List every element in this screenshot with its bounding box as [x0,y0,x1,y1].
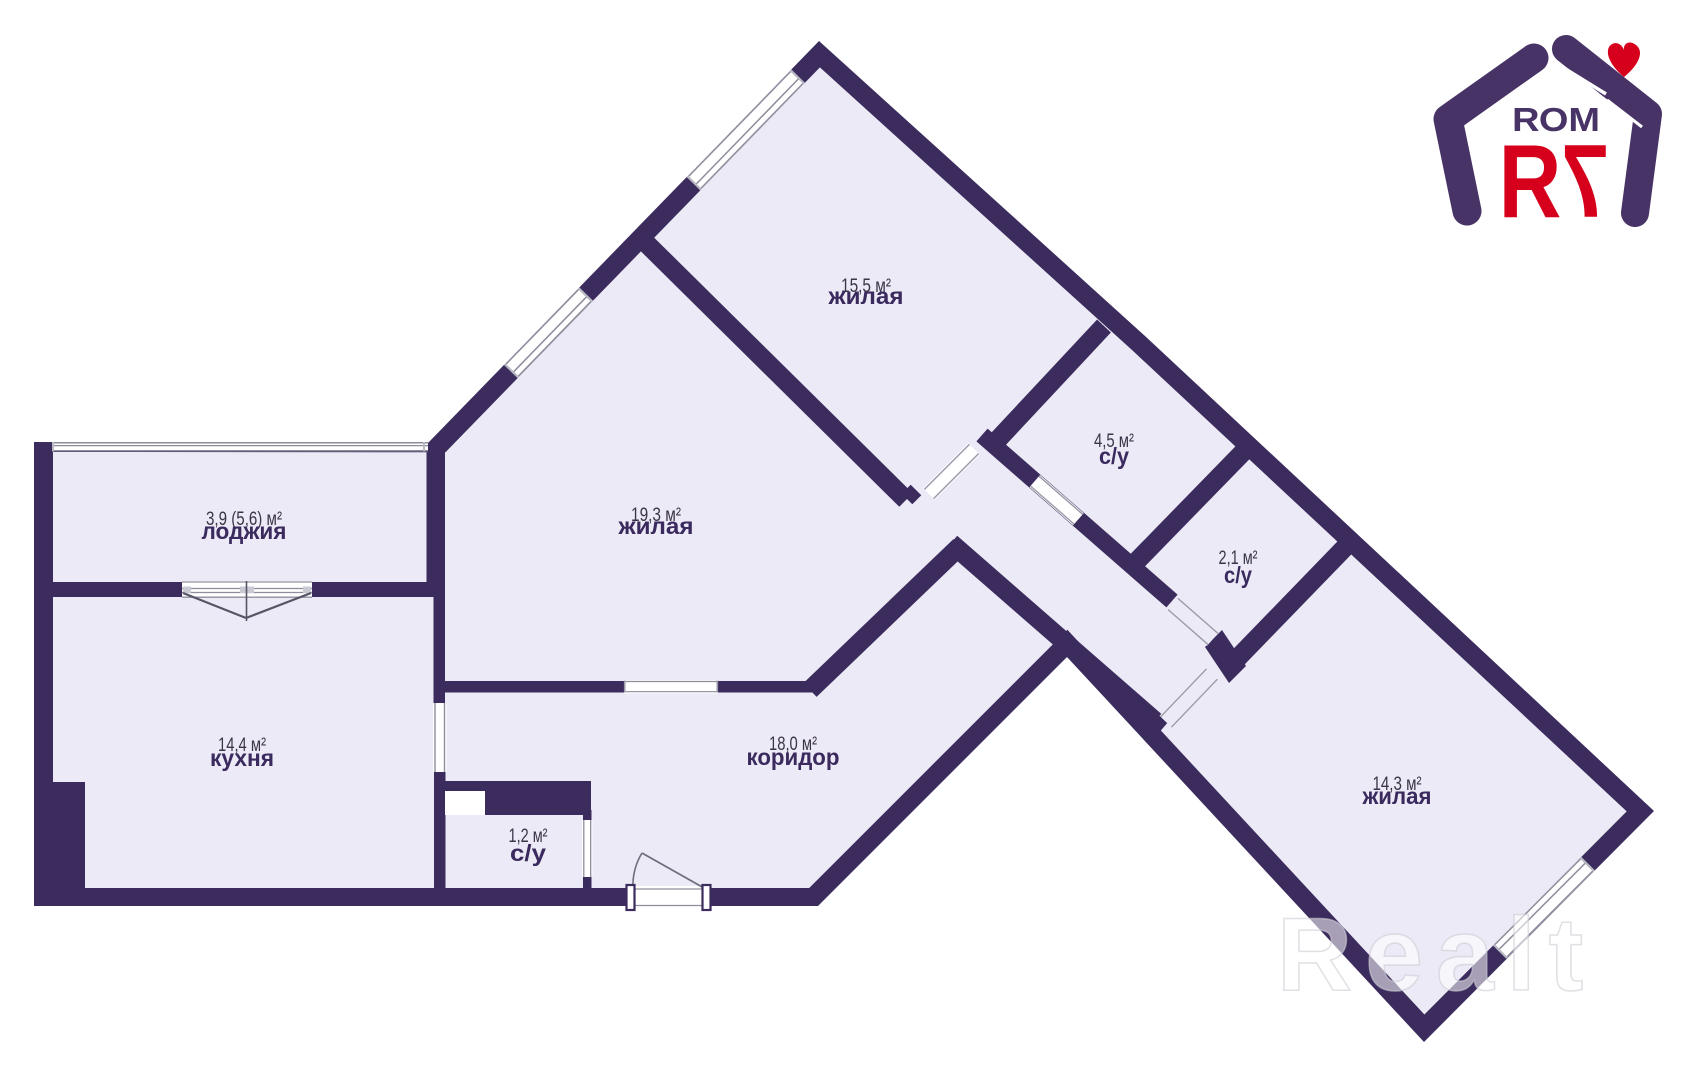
svg-text:с/у: с/у [1224,562,1252,588]
svg-text:коридор: коридор [747,744,840,770]
svg-text:кухня: кухня [210,745,274,771]
svg-text:с/у: с/у [1099,443,1129,469]
svg-text:жилая: жилая [827,283,903,309]
svg-text:7Я: 7Я [1499,124,1610,240]
svg-text:жилая: жилая [1362,783,1432,809]
svg-text:лоджия: лоджия [202,518,287,544]
svg-text:с/у: с/у [510,840,546,866]
svg-text:жилая: жилая [617,513,693,539]
svg-text:Realt: Realt [1277,897,1596,1013]
